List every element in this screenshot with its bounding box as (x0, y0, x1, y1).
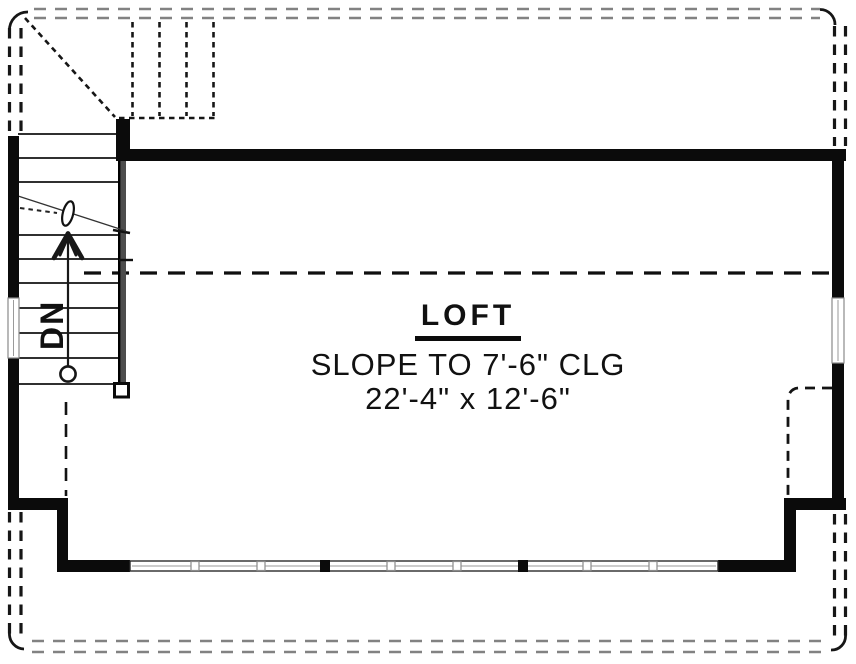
bottom-window-band (130, 560, 718, 572)
room-label-block: LOFT SLOPE TO 7'-6" CLG 22'-4" x 12'-6" (258, 299, 678, 417)
room-dimensions-label: 22'-4" x 12'-6" (258, 382, 678, 417)
ceiling-note-label: SLOPE TO 7'-6" CLG (258, 348, 678, 383)
floor-plan: LOFT SLOPE TO 7'-6" CLG 22'-4" x 12'-6" … (0, 0, 856, 664)
window-mullion (518, 560, 528, 572)
right-window (832, 298, 844, 363)
room-name-label: LOFT (258, 299, 678, 333)
stair-above-cut-dashed (25, 18, 219, 118)
room-name-underline (415, 336, 521, 341)
stair-down-label: DN (34, 300, 71, 350)
left-window (8, 298, 19, 358)
window-mullion (320, 560, 330, 572)
stair-newel-post (115, 384, 129, 398)
stair-break-line (18, 196, 126, 231)
